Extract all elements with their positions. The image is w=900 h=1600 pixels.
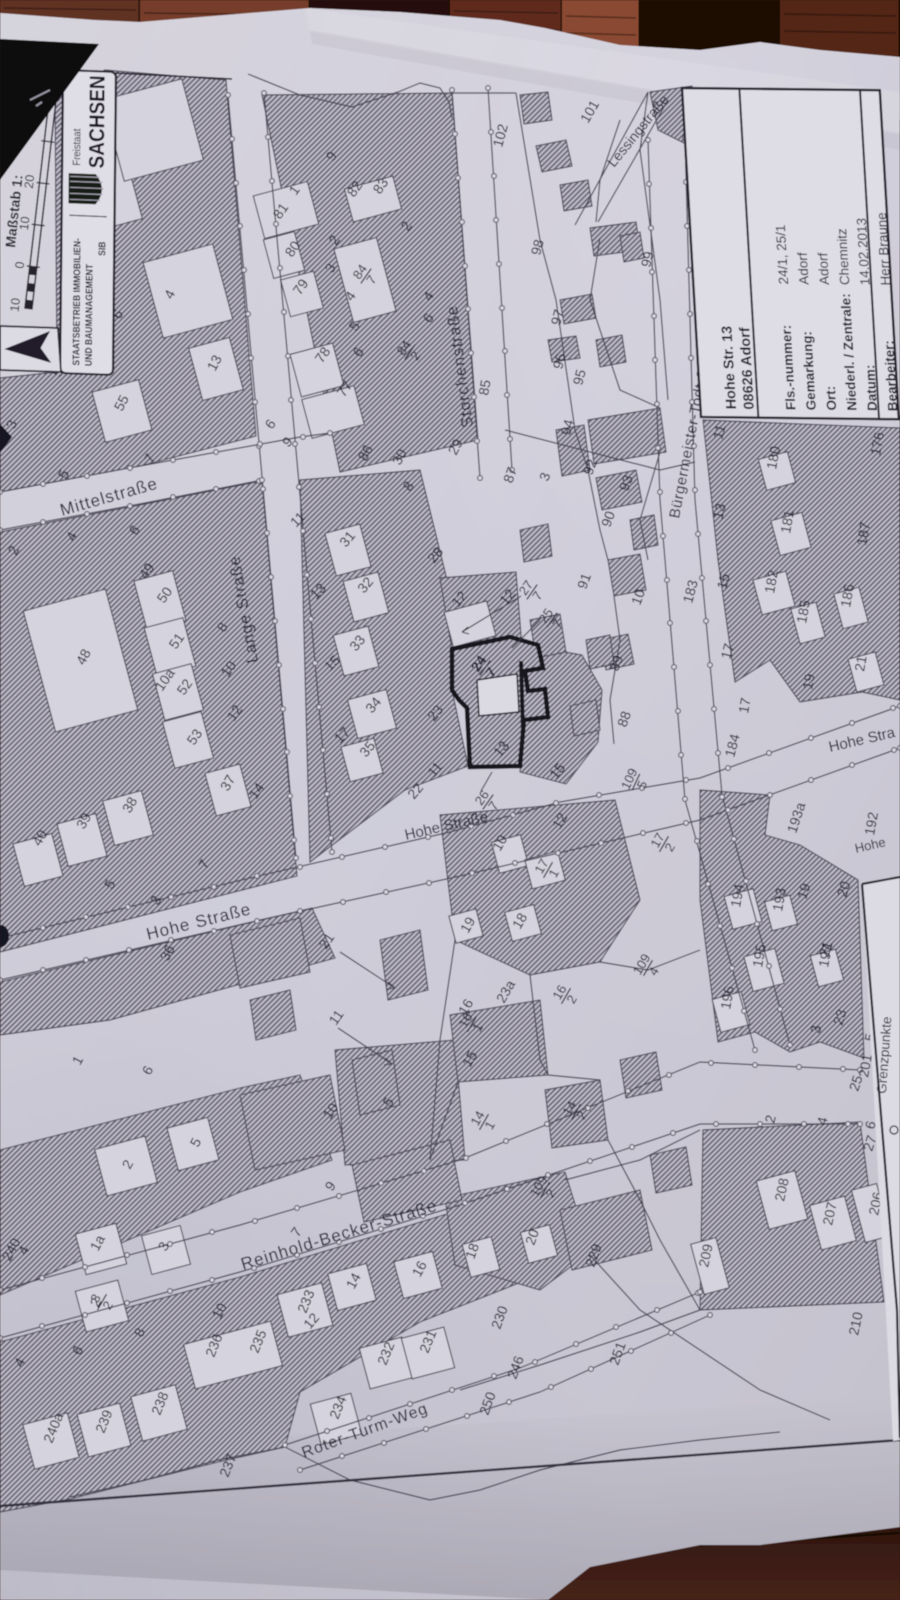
svg-text:21: 21 xyxy=(851,654,869,672)
svg-text:SIB: SIB xyxy=(97,241,108,256)
svg-text:Datum:: Datum: xyxy=(862,365,880,412)
svg-text:19: 19 xyxy=(799,672,817,690)
svg-text:17: 17 xyxy=(735,696,753,714)
svg-text:STAATSBETRIEB IMMOBILIEN-: STAATSBETRIEB IMMOBILIEN- xyxy=(71,238,83,366)
svg-text:Freistaat: Freistaat xyxy=(72,128,84,166)
svg-text:10: 10 xyxy=(8,297,24,312)
svg-text:SACHSEN: SACHSEN xyxy=(86,75,110,169)
svg-text:UND BAUMANAGEMENT: UND BAUMANAGEMENT xyxy=(83,263,95,366)
svg-text:Ort:: Ort: xyxy=(823,386,839,411)
svg-text:Adorf: Adorf xyxy=(795,252,812,285)
svg-text:85: 85 xyxy=(475,378,493,396)
svg-text:Adorf: Adorf xyxy=(815,252,832,285)
